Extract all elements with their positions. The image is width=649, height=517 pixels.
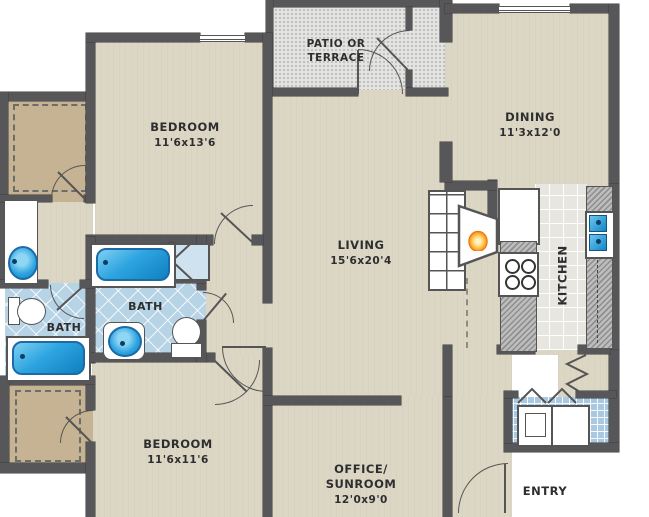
- tub-drain: [103, 260, 108, 265]
- kitchen-name: KITCHEN: [556, 245, 570, 305]
- kitchen-double-sink: [585, 211, 615, 259]
- office-label-line1: OFFICE/: [334, 462, 388, 476]
- bedroom1-dims: 11'6x13'6: [154, 137, 216, 149]
- office-label-line2: SUNROOM: [326, 477, 397, 491]
- wall: [86, 33, 95, 203]
- wall: [252, 235, 263, 245]
- bath1-label: BATH: [40, 321, 88, 335]
- stove: [498, 252, 539, 297]
- dryer: [551, 405, 590, 447]
- wall: [263, 396, 401, 405]
- wall: [445, 4, 499, 13]
- tub-drain: [20, 354, 25, 359]
- wall: [443, 345, 452, 396]
- wall: [266, 88, 358, 96]
- wall: [406, 88, 448, 96]
- sink-drain: [12, 259, 17, 264]
- wall: [445, 181, 497, 190]
- bedroom2-dims: 11'6x11'6: [147, 454, 209, 466]
- refrigerator: [498, 188, 540, 245]
- dining-name: DINING: [505, 110, 555, 124]
- toilet-tank: [171, 343, 202, 358]
- dining-floor: [445, 8, 617, 190]
- wall: [443, 396, 452, 517]
- dining-label: DINING 11'3x12'0: [465, 110, 595, 141]
- dining-dims: 11'3x12'0: [499, 127, 561, 139]
- dishwasher-dashed-line: [597, 255, 600, 343]
- wall: [86, 33, 200, 42]
- hall-living-door-leaf: [222, 346, 266, 348]
- fireplace-flame-icon: [466, 221, 490, 251]
- wall: [504, 391, 518, 398]
- pedestal-sink: [108, 326, 142, 357]
- entry-door-leaf: [504, 464, 506, 513]
- wall: [263, 33, 272, 303]
- wall: [406, 7, 412, 30]
- bedroom1-label: BEDROOM 11'6x13'6: [110, 120, 260, 151]
- bathtub: [96, 248, 170, 281]
- linen-closet: [174, 243, 210, 281]
- wall: [0, 92, 95, 101]
- wall: [0, 463, 95, 473]
- patio-label-line2: TERRACE: [307, 52, 364, 64]
- bath1-name: BATH: [47, 321, 82, 334]
- wall: [86, 385, 95, 410]
- wall: [504, 396, 512, 443]
- bath2-label: BATH: [118, 300, 173, 314]
- kitchen-label: KITCHEN: [556, 235, 571, 315]
- living-dims: 15'6x20'4: [330, 255, 392, 267]
- wall: [440, 142, 452, 182]
- bath2-name: BATH: [128, 300, 163, 313]
- wall: [609, 4, 619, 184]
- wall: [86, 442, 95, 517]
- office-dims: 12'0x9'0: [334, 494, 388, 506]
- floor-plan: PATIO OR TERRACE DINING 11'3x12'0 BEDROO…: [0, 0, 649, 517]
- bedroom1-name: BEDROOM: [150, 120, 220, 134]
- office-label: OFFICE/ SUNROOM 12'0x9'0: [300, 462, 422, 508]
- wall: [266, 0, 448, 7]
- patio-label-line1: PATIO OR: [307, 38, 366, 50]
- dining-window: [499, 6, 570, 13]
- patio-label: PATIO OR TERRACE: [288, 38, 384, 65]
- entry-label: ENTRY: [513, 484, 577, 499]
- bedroom2-name: BEDROOM: [143, 437, 213, 451]
- wall: [609, 350, 619, 450]
- area-divider-dashed-line: [466, 278, 470, 348]
- living-name: LIVING: [338, 238, 385, 252]
- wall: [0, 376, 9, 472]
- sink-drain: [120, 341, 125, 346]
- pantry-bifold-door: [564, 355, 592, 397]
- living-label: LIVING 15'6x20'4: [296, 238, 426, 269]
- bedroom2-label: BEDROOM 11'6x11'6: [103, 437, 253, 468]
- entry-name: ENTRY: [523, 484, 567, 498]
- bedroom1-window: [200, 35, 245, 42]
